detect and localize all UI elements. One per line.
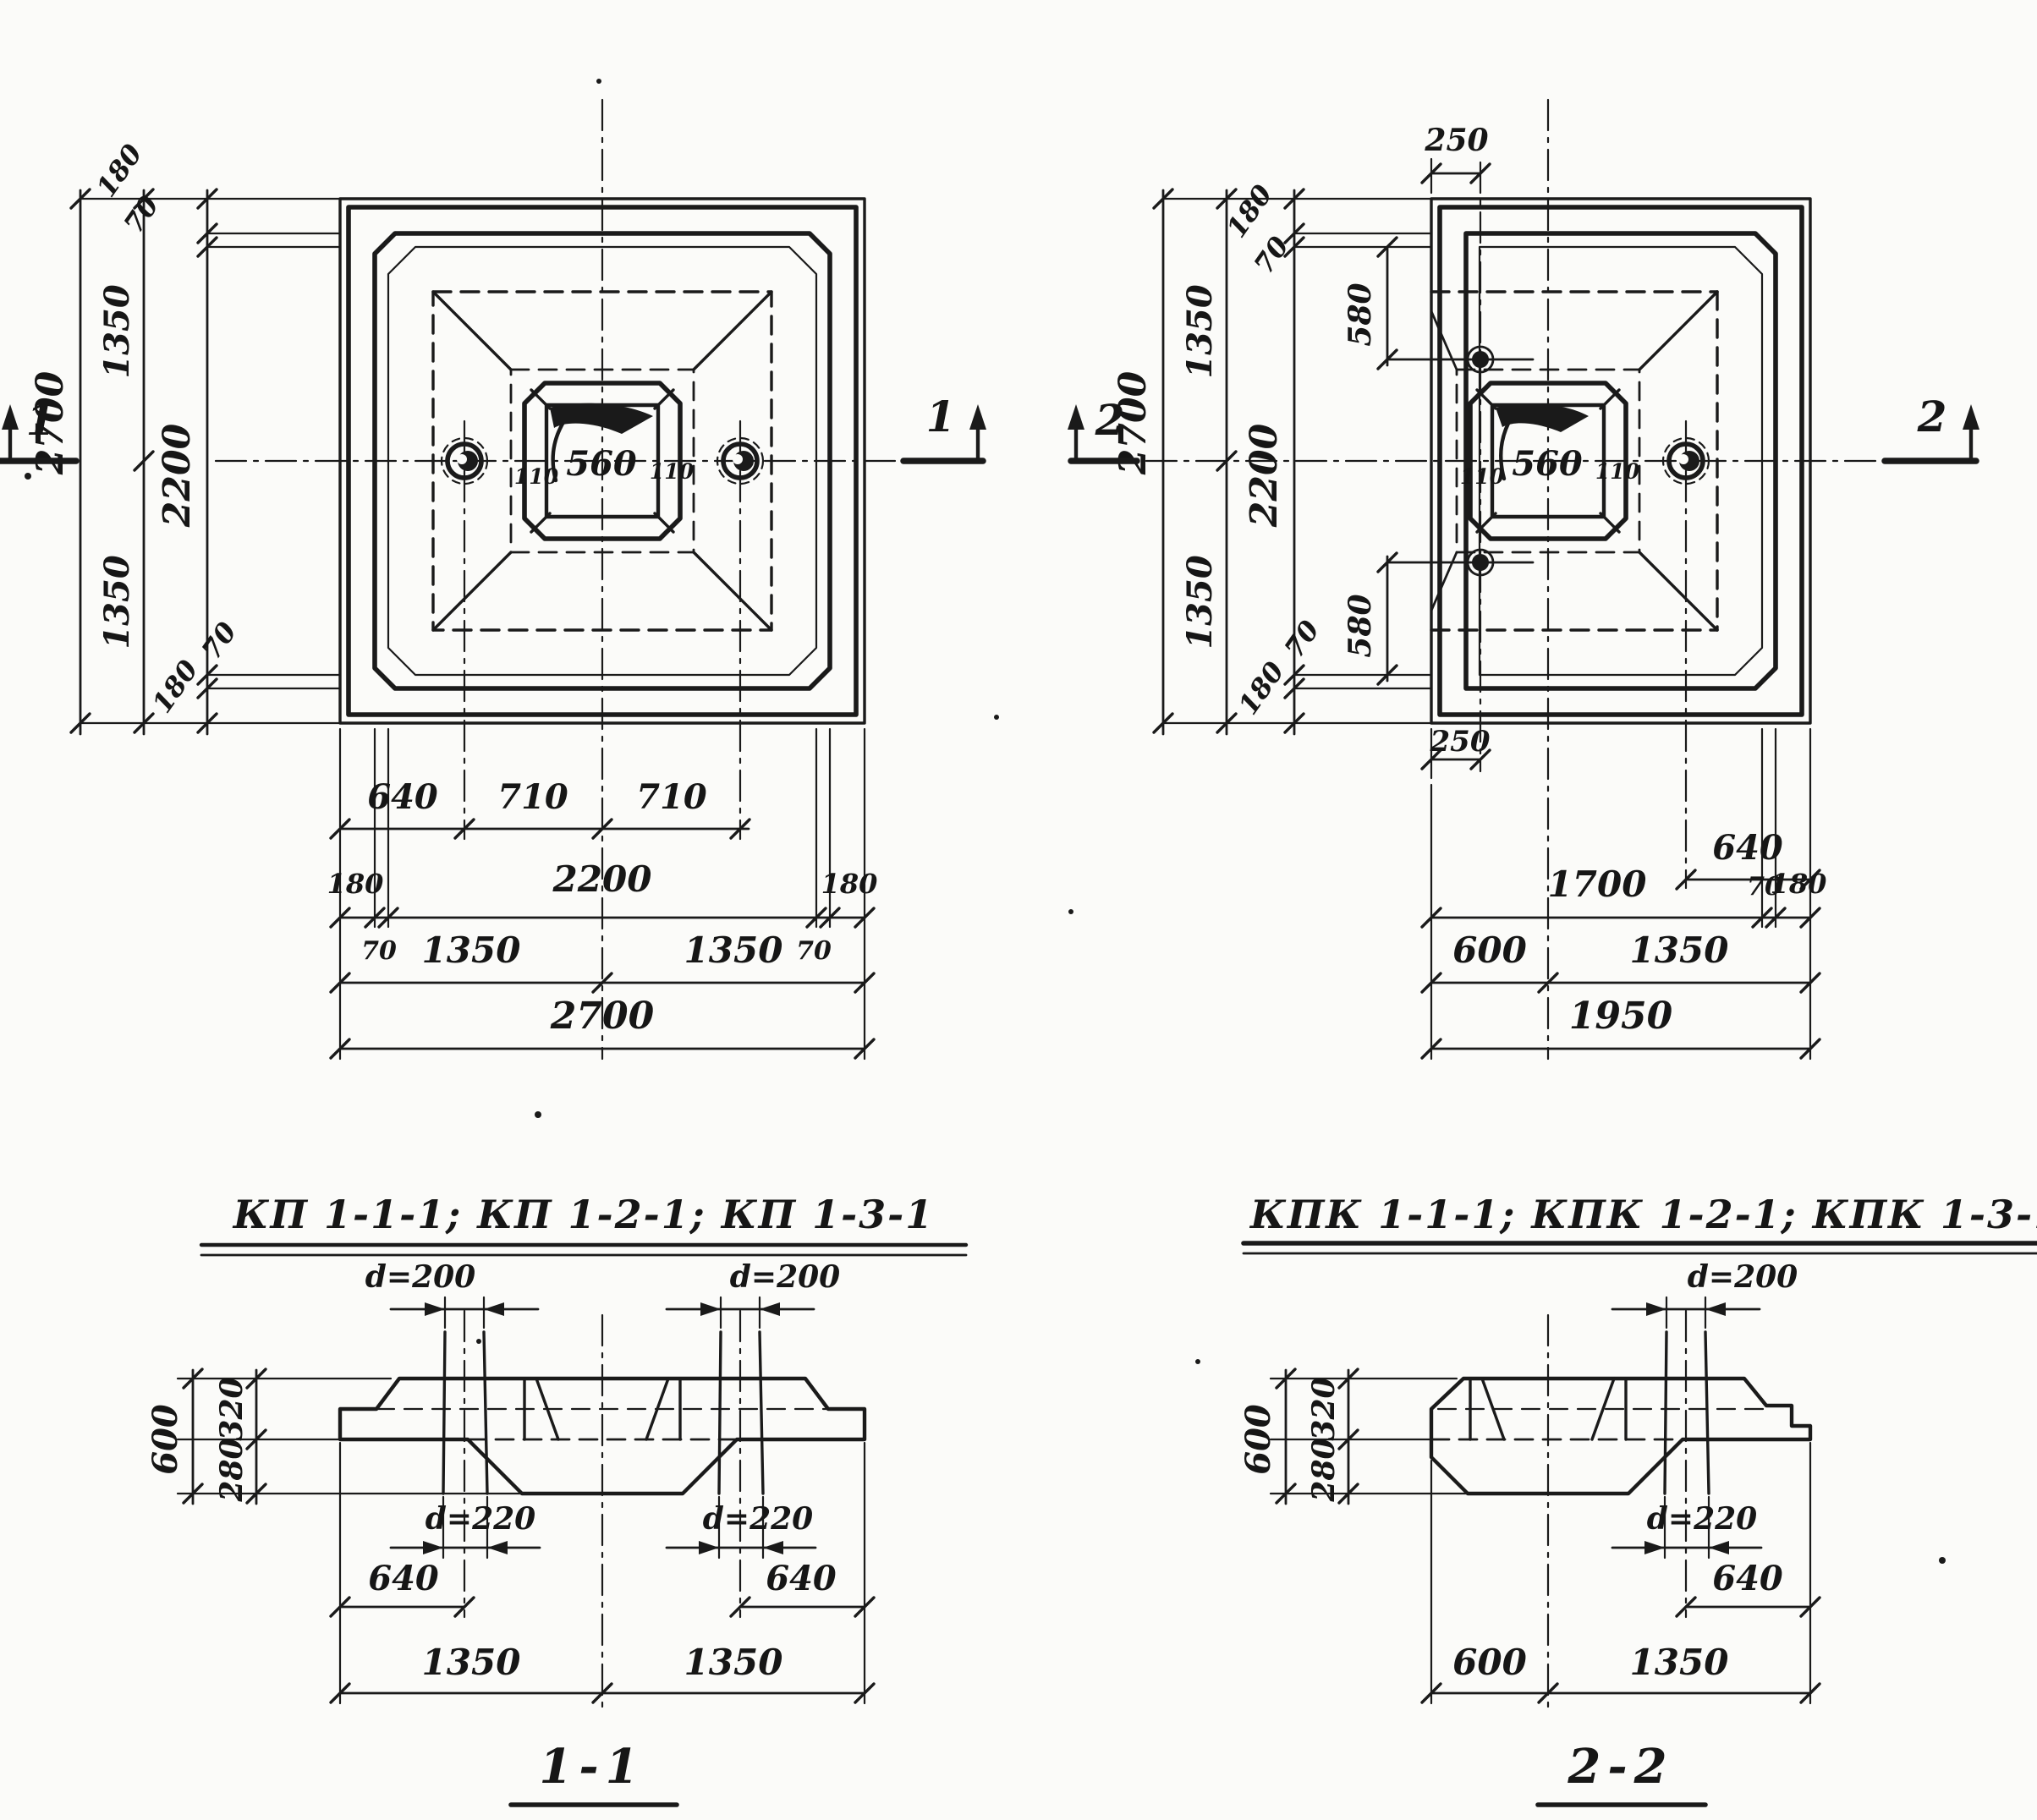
plan-left-title: КП 1-1-1; КП 1-2-1; КП 1-3-1 bbox=[201, 1192, 966, 1255]
dim-580-bot: 580 bbox=[1342, 594, 1378, 657]
dim-180: 180 bbox=[1771, 868, 1827, 900]
dim-250-top: 250 bbox=[1424, 123, 1488, 158]
marker-digit: 1 bbox=[26, 395, 56, 445]
section-1-1-d220-right: d=220 bbox=[667, 1497, 815, 1558]
plan-right: 110 560 110 bbox=[1068, 100, 2037, 1253]
dim-180-right: 180 bbox=[821, 868, 878, 900]
blueprint-sheet: 110 560 110 bbox=[0, 0, 2037, 1820]
dim-640-right: 640 bbox=[766, 1559, 837, 1598]
socket-dim-560: 560 bbox=[1512, 444, 1583, 484]
section-1-1: d=200 d=200 d=220 d=220 bbox=[145, 1259, 874, 1805]
dim-1350-v-top: 1350 bbox=[1180, 284, 1220, 378]
dim-70-top: 70 bbox=[118, 190, 166, 239]
dim-600-h: 600 bbox=[1452, 1642, 1527, 1683]
dim-640-left: 640 bbox=[368, 1559, 439, 1598]
section-1-1-title: 1-1 bbox=[511, 1739, 677, 1805]
section-title-text: 2-2 bbox=[1567, 1739, 1673, 1795]
plan-right-hole-east bbox=[1663, 438, 1709, 484]
section-2-2: d=200 d=220 600 320 280 bbox=[1238, 1259, 1820, 1805]
dim-640: 640 bbox=[367, 777, 438, 817]
section-2-2-d220: d=220 bbox=[1612, 1497, 1761, 1558]
socket-dim-560: 560 bbox=[566, 444, 637, 484]
plan-left-dims-west: 2700 1350 1350 2200 180 70 70 180 bbox=[29, 138, 340, 734]
section-title-text: 1-1 bbox=[539, 1739, 645, 1795]
plan-left-hole-east bbox=[717, 438, 763, 484]
dim-320: 320 bbox=[1306, 1377, 1342, 1440]
dim-180-left: 180 bbox=[327, 868, 384, 900]
dim-70-bot: 70 bbox=[1278, 615, 1326, 664]
dim-1350-right: 1350 bbox=[684, 1642, 783, 1683]
section-1-1-d200-right: d=200 bbox=[667, 1259, 840, 1328]
section-2-2-title: 2-2 bbox=[1538, 1739, 1705, 1805]
section-2-2-dims-south: 640 600 1350 bbox=[1422, 1443, 1820, 1703]
socket-dim-110-right: 110 bbox=[650, 459, 695, 484]
dim-1350-b: 1350 bbox=[684, 929, 783, 971]
dim-280: 280 bbox=[1306, 1438, 1342, 1502]
dim-d220: d=220 bbox=[426, 1501, 535, 1537]
dim-1350-a: 1350 bbox=[422, 929, 521, 971]
plan-right-title: КПК 1-1-1; КПК 1-2-1; КПК 1-3-1 bbox=[1244, 1192, 2037, 1253]
section-2-2-dims-west: 600 320 280 bbox=[1238, 1369, 1470, 1504]
dim-600: 600 bbox=[145, 1404, 185, 1475]
socket-dim-110-left: 110 bbox=[1460, 464, 1505, 489]
section-marker-1-right: 1 bbox=[903, 392, 986, 461]
marker-digit: 2 bbox=[1917, 392, 1947, 441]
scan-specks bbox=[25, 79, 1946, 1564]
dim-70-left: 70 bbox=[361, 936, 397, 966]
section-1-1-d220-left: d=220 bbox=[391, 1497, 540, 1558]
dim-640: 640 bbox=[1712, 828, 1783, 868]
dim-640: 640 bbox=[1712, 1559, 1783, 1598]
dim-600: 600 bbox=[1238, 1404, 1278, 1475]
dim-1350-v-bot: 1350 bbox=[1180, 555, 1220, 649]
dim-710-a: 710 bbox=[497, 777, 568, 817]
dim-d220: d=220 bbox=[703, 1501, 813, 1537]
plan-left-hole-west bbox=[442, 438, 487, 484]
dim-250-bottom: 250 bbox=[1430, 725, 1491, 759]
dim-d220: d=220 bbox=[1647, 1501, 1757, 1537]
dim-180-bot: 180 bbox=[145, 654, 204, 719]
blueprint-canvas: 110 560 110 bbox=[0, 0, 2037, 1820]
dim-d200: d=200 bbox=[1688, 1259, 1798, 1295]
marker-digit: 2 bbox=[1095, 395, 1125, 445]
dim-1350-v-top: 1350 bbox=[97, 284, 137, 378]
section-2-2-d200: d=200 bbox=[1612, 1259, 1798, 1328]
dim-d200: d=200 bbox=[365, 1259, 475, 1295]
dim-1350-left: 1350 bbox=[422, 1642, 521, 1683]
dim-1350: 1350 bbox=[1630, 929, 1729, 971]
plan-left: 110 560 110 bbox=[0, 100, 986, 1255]
dim-1350: 1350 bbox=[1630, 1642, 1729, 1683]
dim-70-bot: 70 bbox=[195, 617, 244, 666]
section-1-1-dims-west: 600 320 280 bbox=[145, 1369, 524, 1504]
socket-dim-110-left: 110 bbox=[514, 464, 559, 489]
dim-1350-v-bot: 1350 bbox=[97, 555, 137, 649]
dim-320: 320 bbox=[214, 1377, 250, 1440]
dim-710-b: 710 bbox=[636, 777, 707, 817]
plan-left-title-text: КП 1-1-1; КП 1-2-1; КП 1-3-1 bbox=[232, 1192, 935, 1237]
dim-1950: 1950 bbox=[1569, 995, 1673, 1038]
dim-d200: d=200 bbox=[730, 1259, 840, 1295]
dim-600: 600 bbox=[1452, 929, 1527, 971]
dim-70-right: 70 bbox=[796, 936, 832, 966]
dim-2200-v: 2200 bbox=[156, 423, 199, 528]
dim-2700-h: 2700 bbox=[550, 995, 655, 1038]
marker-digit: 1 bbox=[926, 392, 956, 441]
dim-180-bot: 180 bbox=[1232, 655, 1290, 721]
plan-right-dims-south: 640 1700 70 180 600 1350 1950 bbox=[1422, 729, 1826, 1059]
dim-280: 280 bbox=[214, 1438, 250, 1502]
plan-right-title-text: КПК 1-1-1; КПК 1-2-1; КПК 1-3-1 bbox=[1249, 1192, 2037, 1237]
plan-right-pin-hole-top bbox=[1387, 347, 1533, 372]
dim-2200-h: 2200 bbox=[552, 858, 652, 900]
section-marker-2-right: 2 bbox=[1885, 392, 1979, 461]
section-1-1-d200-left: d=200 bbox=[365, 1259, 538, 1328]
socket-dim-110-right: 110 bbox=[1595, 459, 1640, 484]
dim-2200-v: 2200 bbox=[1243, 423, 1286, 528]
dim-580-top: 580 bbox=[1342, 282, 1378, 346]
plan-right-dims-west: 2700 1350 1350 2200 180 70 580 580 70 18… bbox=[1112, 178, 1431, 734]
plan-right-pin-hole-bottom bbox=[1387, 550, 1533, 575]
dim-1700: 1700 bbox=[1548, 863, 1647, 905]
